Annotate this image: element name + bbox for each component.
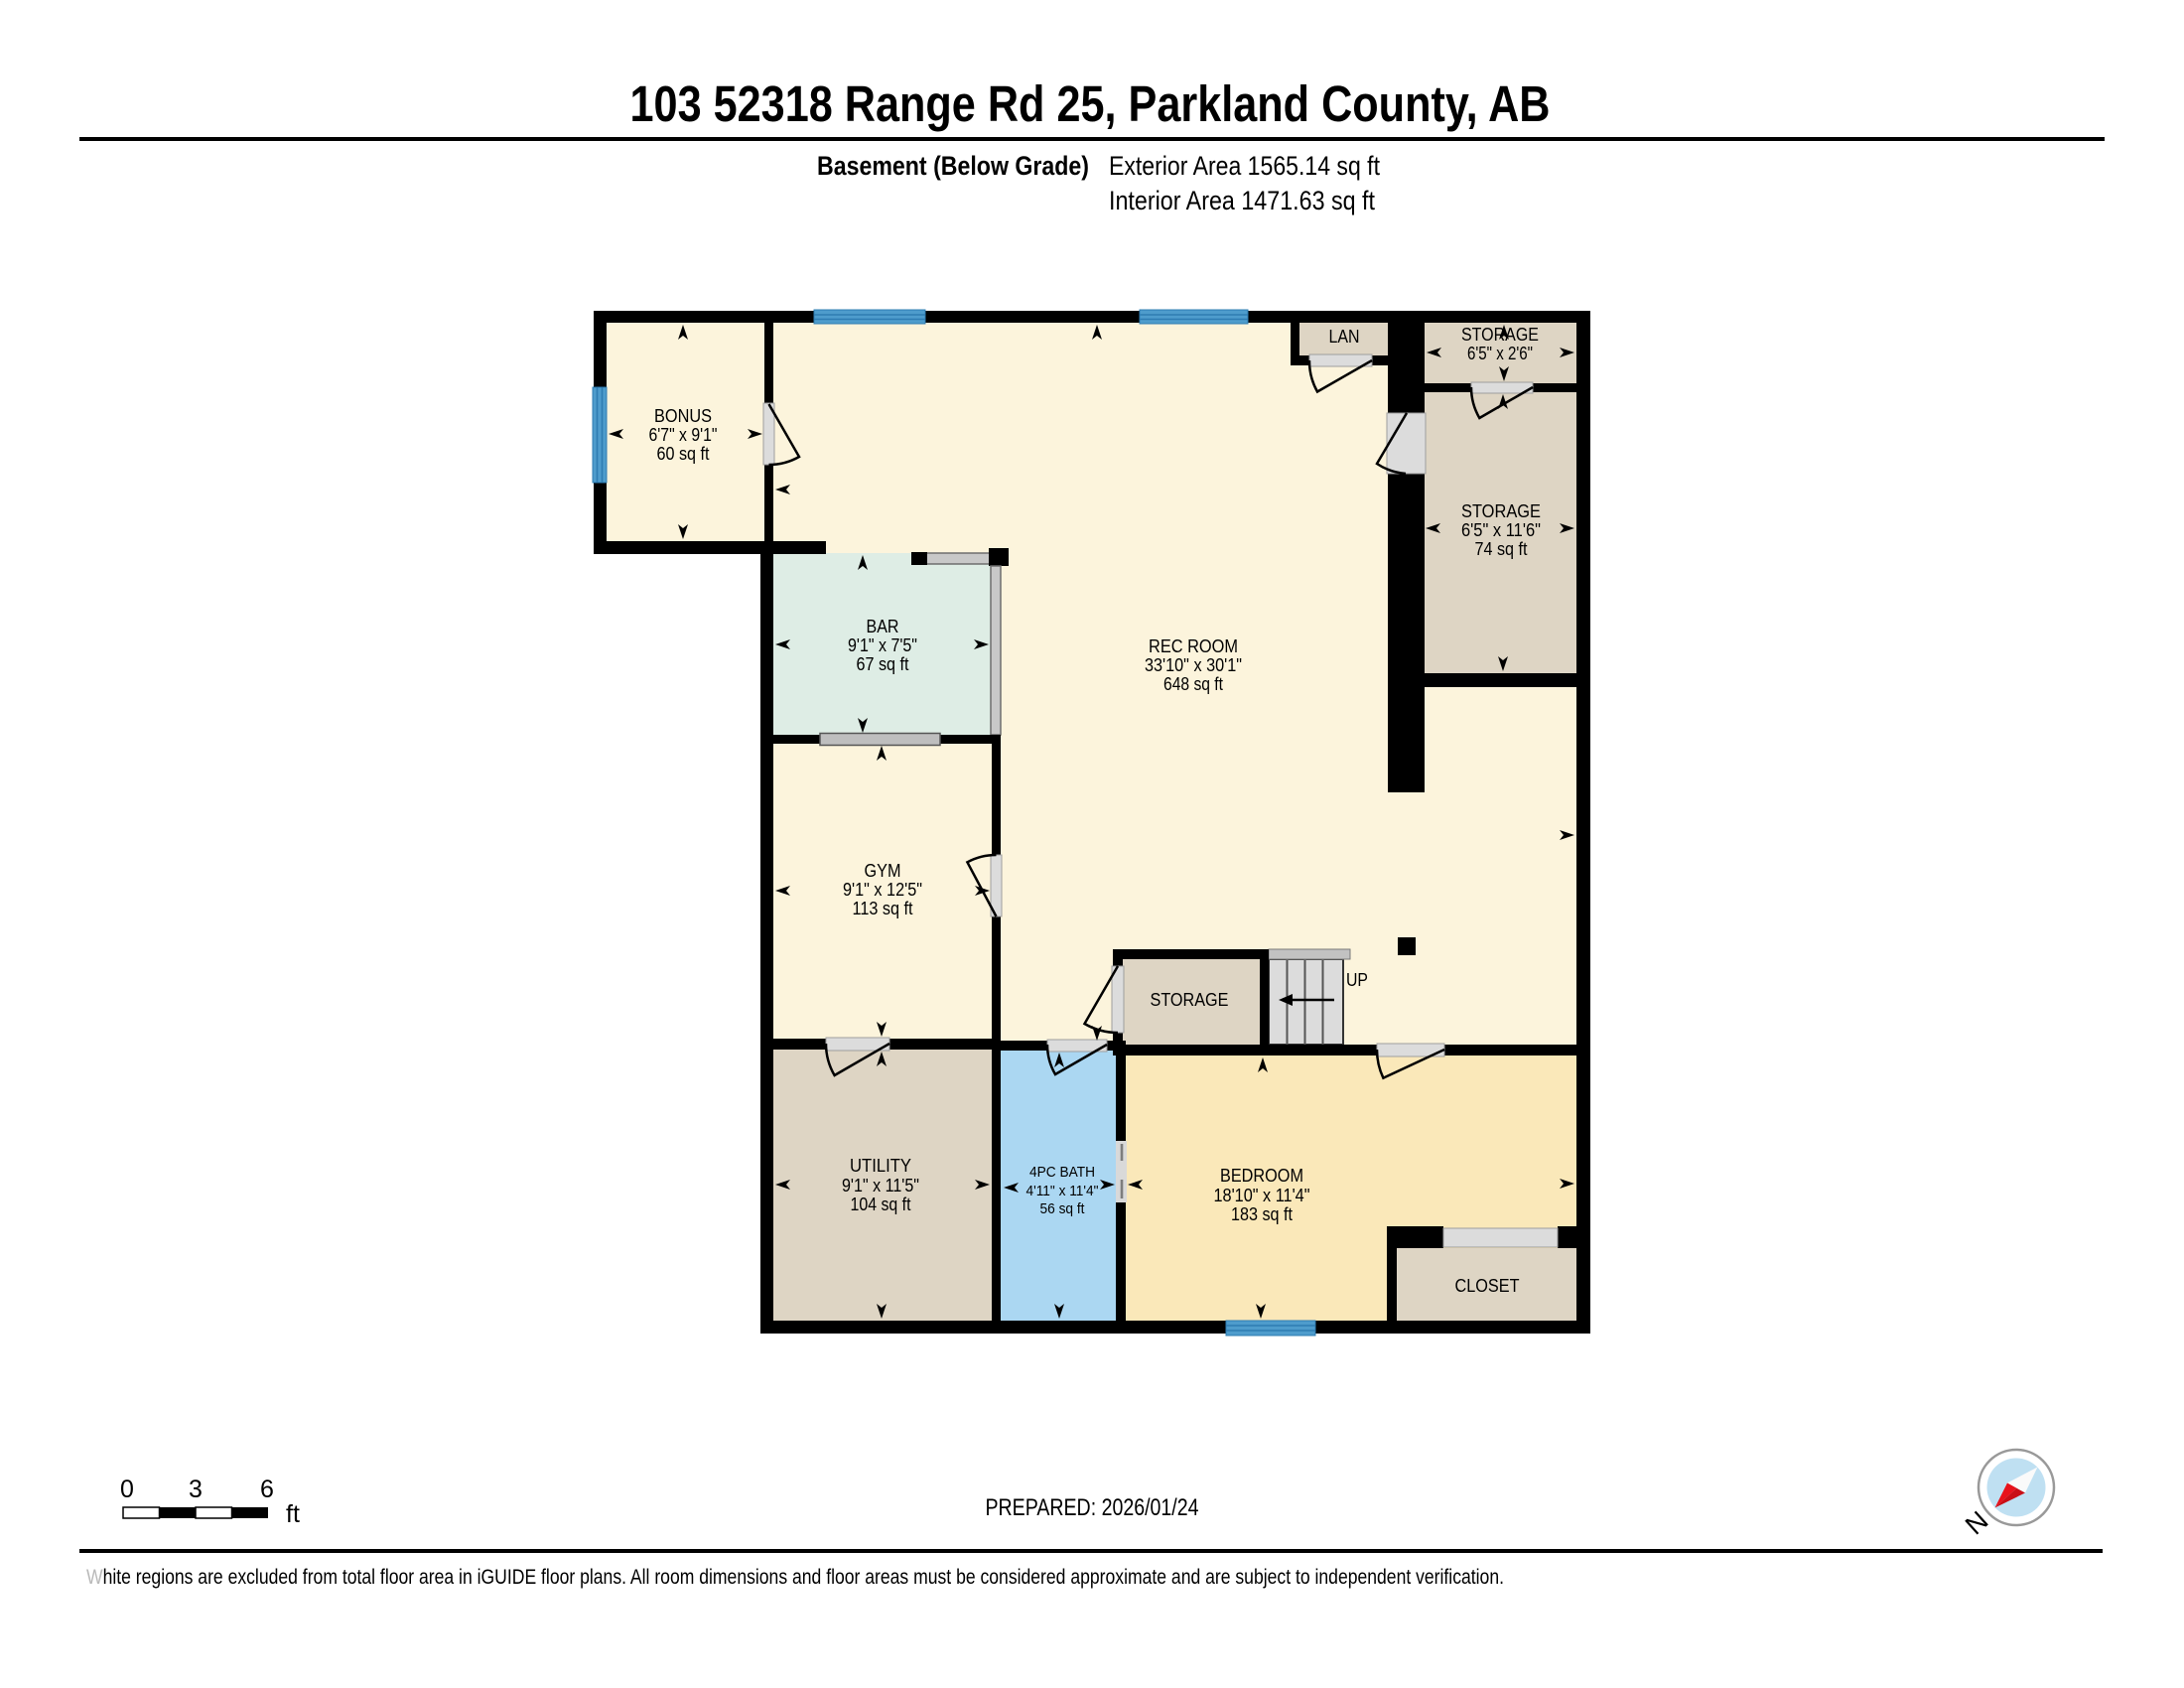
svg-text:18'10" x 11'4": 18'10" x 11'4" — [1214, 1186, 1310, 1205]
svg-text:6'5" x 11'6": 6'5" x 11'6" — [1461, 520, 1541, 540]
svg-text:33'10" x 30'1": 33'10" x 30'1" — [1145, 655, 1242, 675]
svg-text:56 sq ft: 56 sq ft — [1040, 1200, 1086, 1217]
svg-text:STORAGE: STORAGE — [1461, 325, 1539, 345]
svg-text:Exterior Area 1565.14 sq ft: Exterior Area 1565.14 sq ft — [1109, 151, 1380, 181]
svg-text:6: 6 — [260, 1476, 274, 1503]
svg-text:113 sq ft: 113 sq ft — [853, 899, 913, 918]
svg-text:Basement (Below Grade): Basement (Below Grade) — [817, 151, 1089, 181]
svg-text:CLOSET: CLOSET — [1455, 1276, 1520, 1296]
svg-text:LAN: LAN — [1329, 327, 1360, 347]
svg-text:67 sq ft: 67 sq ft — [857, 654, 909, 674]
svg-text:Interior Area 1471.63 sq ft: Interior Area 1471.63 sq ft — [1109, 186, 1375, 215]
svg-text:BEDROOM: BEDROOM — [1220, 1166, 1303, 1186]
svg-text:9'1" x 11'5": 9'1" x 11'5" — [842, 1176, 919, 1196]
svg-text:9'1" x 12'5": 9'1" x 12'5" — [843, 880, 922, 900]
svg-text:ft: ft — [286, 1500, 300, 1528]
svg-text:6'5" x 2'6": 6'5" x 2'6" — [1467, 344, 1533, 363]
svg-text:60 sq ft: 60 sq ft — [657, 444, 710, 464]
svg-text:74 sq ft: 74 sq ft — [1475, 539, 1528, 559]
svg-text:STORAGE: STORAGE — [1461, 501, 1541, 521]
svg-text:3: 3 — [189, 1476, 203, 1503]
svg-text:4'11" x 11'4": 4'11" x 11'4" — [1026, 1183, 1099, 1199]
svg-text:BONUS: BONUS — [654, 406, 712, 426]
svg-text:103 52318 Range Rd 25, Parklan: 103 52318 Range Rd 25, Parkland County, … — [630, 75, 1551, 132]
svg-text:PREPARED: 2026/01/24: PREPARED: 2026/01/24 — [986, 1494, 1199, 1521]
svg-text:REC ROOM: REC ROOM — [1149, 636, 1238, 656]
svg-text:STORAGE: STORAGE — [1151, 990, 1229, 1010]
svg-text:4PC BATH: 4PC BATH — [1029, 1164, 1095, 1181]
svg-text:UP: UP — [1346, 970, 1368, 990]
svg-text:GYM: GYM — [865, 861, 901, 881]
svg-text:BAR: BAR — [867, 617, 899, 636]
svg-text:9'1" x 7'5": 9'1" x 7'5" — [848, 635, 917, 655]
svg-text:648 sq ft: 648 sq ft — [1163, 674, 1223, 694]
svg-text:0: 0 — [120, 1476, 134, 1503]
svg-text:UTILITY: UTILITY — [850, 1156, 911, 1176]
svg-text:6'7" x 9'1": 6'7" x 9'1" — [649, 425, 718, 445]
svg-text:White regions are excluded fro: White regions are excluded from total fl… — [86, 1566, 1504, 1589]
svg-text:104 sq ft: 104 sq ft — [851, 1195, 911, 1214]
svg-text:183 sq ft: 183 sq ft — [1231, 1204, 1293, 1224]
